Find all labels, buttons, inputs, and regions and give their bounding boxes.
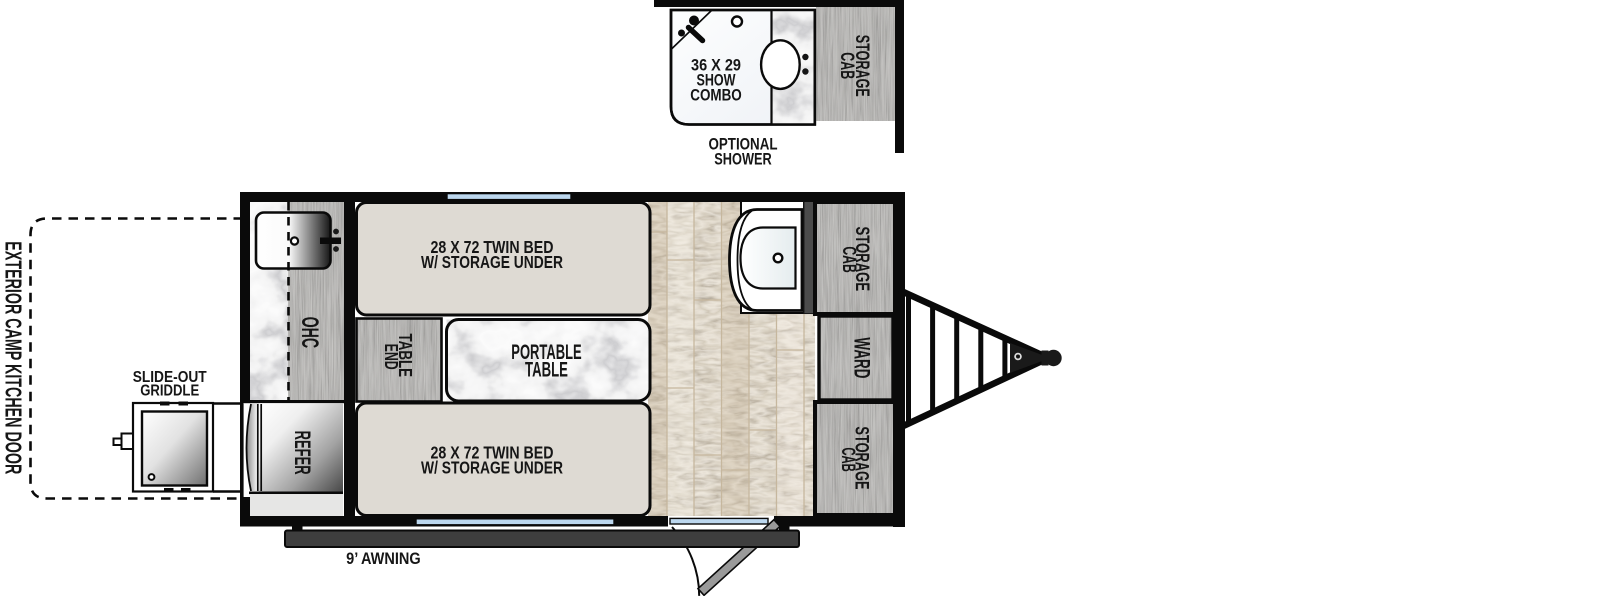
- svg-text:W/ STORAGE UNDER: W/ STORAGE UNDER: [421, 458, 563, 478]
- svg-text:CAB: CAB: [838, 246, 860, 273]
- svg-text:EXTERIOR CAMP KITCHEN DOOR: EXTERIOR CAMP KITCHEN DOOR: [0, 241, 26, 474]
- svg-text:SHOWER: SHOWER: [714, 150, 772, 169]
- svg-text:OHC: OHC: [296, 317, 323, 349]
- svg-text:COMBO: COMBO: [690, 87, 742, 105]
- svg-text:GRIDDLE: GRIDDLE: [140, 383, 199, 400]
- svg-text:9’ AWNING: 9’ AWNING: [346, 549, 421, 568]
- svg-text:TABLE: TABLE: [395, 334, 416, 378]
- svg-text:CAB: CAB: [836, 52, 858, 79]
- svg-text:REFER: REFER: [290, 431, 315, 475]
- svg-text:CAB: CAB: [837, 447, 859, 472]
- svg-text:W/ STORAGE UNDER: W/ STORAGE UNDER: [421, 252, 563, 272]
- svg-text:TABLE: TABLE: [525, 359, 568, 382]
- svg-text:WARD: WARD: [850, 337, 875, 378]
